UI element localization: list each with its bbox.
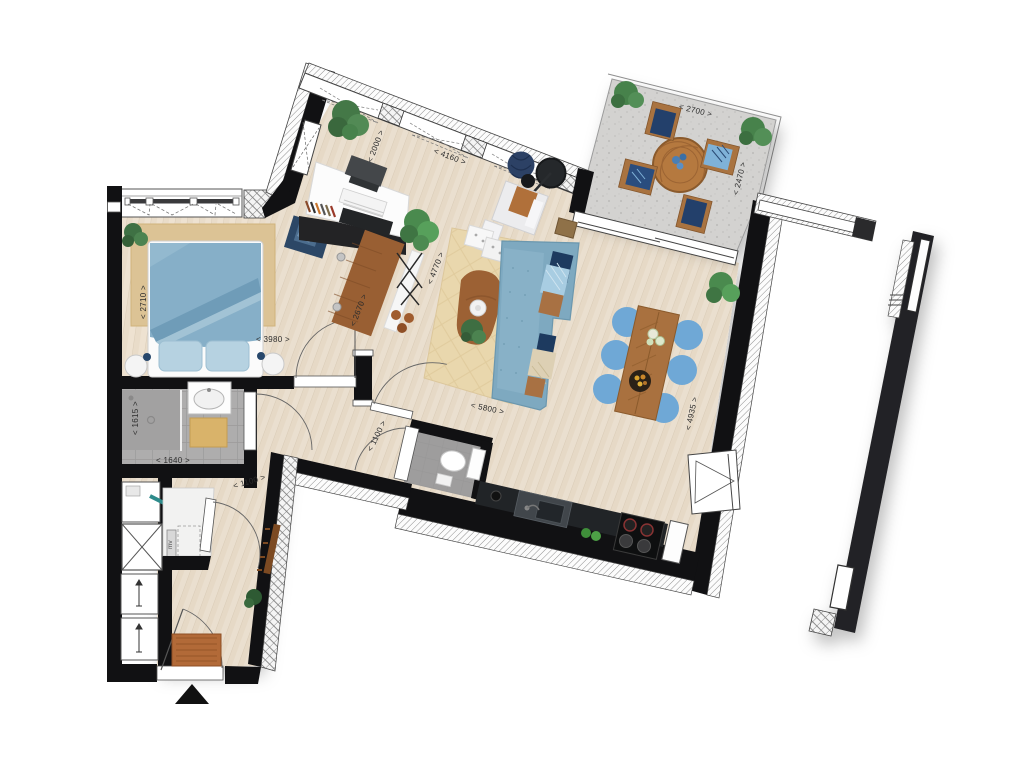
svg-text:mv: mv xyxy=(167,540,174,549)
svg-text:< 1615 >: < 1615 > xyxy=(131,401,140,435)
svg-text:< 1640 >: < 1640 > xyxy=(156,456,190,465)
svg-text:< 2710 >: < 2710 > xyxy=(139,285,148,319)
svg-text:< 3980 >: < 3980 > xyxy=(256,335,290,344)
